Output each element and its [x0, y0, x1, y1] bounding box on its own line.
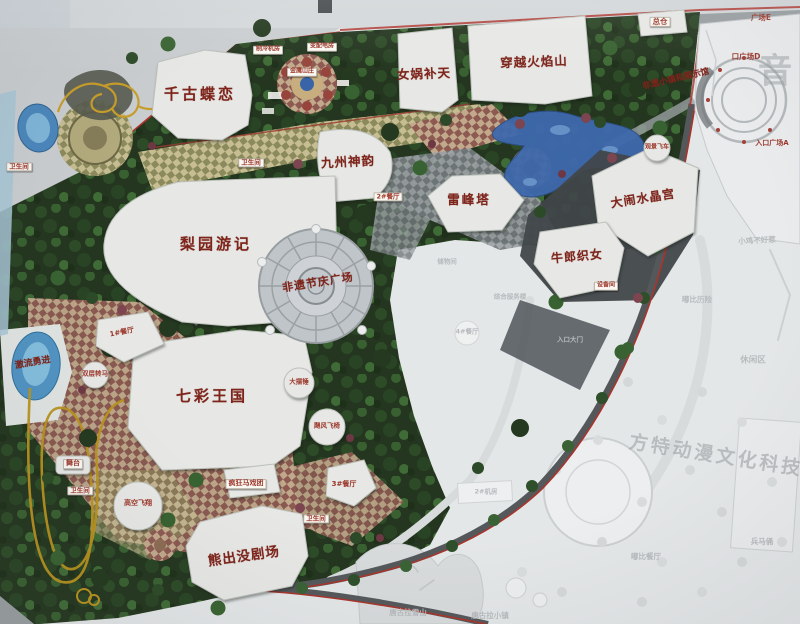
facility-tag: 疯狂马戏团 [226, 479, 267, 489]
attraction-label: 穿越火焰山 [500, 54, 568, 70]
attraction-label: 激流勇进 [14, 356, 51, 372]
facility-tag: 总仓 [650, 17, 671, 27]
attraction-label: 梨园游记 [180, 236, 252, 253]
map-labels-layer: 千古蝶恋女娲补天穿越火焰山九州神韵雷峰塔大闹水晶宫牛郎织女梨园游记非遗节庆广场七… [0, 0, 800, 624]
facility-tag: 卫生间 [6, 162, 32, 171]
faded-label: 2#机房 [475, 488, 498, 495]
attraction-label: 女娲补天 [397, 66, 451, 82]
attraction-label: 熊出没剧场 [207, 545, 281, 570]
faded-label: 嘟比餐厅 [631, 553, 661, 561]
facility-label: 1#餐厅 [109, 327, 135, 339]
faded-label: 休闲区 [740, 356, 766, 365]
faded-label: 嘟比历险 [682, 296, 712, 304]
facility-tag: 2#餐厅 [374, 192, 403, 201]
facility-label: 大摆锤 [289, 378, 309, 385]
faded-label: 唐古拉雪山 [389, 609, 427, 617]
facility-label: 入口广场A [755, 140, 788, 148]
faded-label: 储物间 [437, 258, 457, 265]
attraction-label: 牛郎织女 [551, 248, 604, 266]
facility-label: 口广场D [732, 53, 761, 61]
facility-tag: 卫生间 [67, 486, 93, 495]
facility-tag: 舞台 [63, 459, 83, 469]
facility-tag: 卫生间 [303, 514, 329, 523]
facility-label: 广场E [751, 14, 771, 22]
facility-tag: 制冷机房 [253, 46, 283, 55]
attraction-label: 非遗节庆广场 [281, 271, 354, 294]
attraction-label: 七彩王国 [176, 388, 248, 405]
attraction-label: 九州神韵 [321, 154, 376, 171]
facility-label: 飓风飞椅 [314, 422, 340, 429]
attraction-label: 大闹水晶宫 [610, 187, 676, 210]
watermark-text: 音 [758, 53, 792, 90]
facility-label: 观景飞车 [645, 145, 669, 152]
facility-label: 高空飞翔 [124, 500, 152, 508]
theme-park-map-photo: 千古蝶恋女娲补天穿越火焰山九州神韵雷峰塔大闹水晶宫牛郎织女梨园游记非遗节庆广场七… [0, 0, 800, 624]
faded-label: 入口大门 [557, 336, 583, 343]
attraction-label: 千古蝶恋 [164, 86, 236, 103]
faded-label: 兵马俑 [751, 538, 774, 546]
facility-label: 双层转马 [82, 370, 108, 377]
attraction-label: 非遗小镇和展示馆 [642, 68, 710, 92]
facility-label: 3#餐厅 [332, 481, 357, 489]
facility-tag: 卫生间 [238, 158, 264, 167]
facility-tag: 变配电房 [307, 43, 337, 52]
faded-label: 唐古拉小镇 [471, 612, 509, 620]
faded-label: 综合服务楼 [494, 293, 527, 300]
watermark-text: 方特动漫文化科技 [627, 432, 800, 480]
facility-tag: 金鹰山庄 [287, 68, 317, 77]
attraction-label: 雷峰塔 [447, 193, 491, 207]
faded-label: 小鸡不好惹 [738, 236, 776, 246]
faded-label: 4#餐厅 [456, 328, 479, 335]
facility-tag: 设备间 [594, 282, 618, 291]
